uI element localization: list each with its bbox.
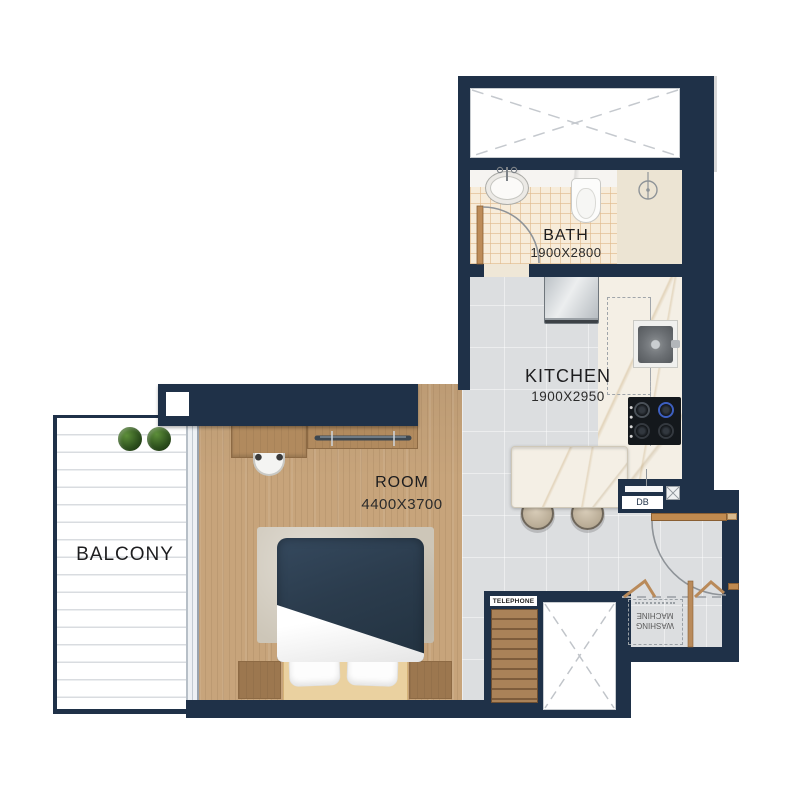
washing-machine-label: WASHING MACHINE bbox=[631, 610, 679, 630]
entry-jamb bbox=[727, 513, 737, 520]
island-counter bbox=[511, 446, 628, 508]
kitchen-sink-basin bbox=[638, 326, 673, 363]
stove-hob bbox=[628, 397, 681, 445]
plant-icon bbox=[147, 427, 171, 451]
wall-left bbox=[458, 170, 470, 390]
corridor-floor bbox=[462, 598, 486, 702]
toilet bbox=[571, 178, 601, 223]
stove-burner bbox=[634, 402, 650, 418]
db-conduit-line bbox=[646, 469, 647, 486]
room-dims: 4400X3700 bbox=[361, 496, 442, 513]
closet-jamb bbox=[728, 583, 739, 590]
stove-burner bbox=[634, 423, 650, 439]
faucet-icon bbox=[671, 340, 680, 348]
stove-burner bbox=[658, 402, 674, 418]
balcony-label: BALCONY bbox=[76, 544, 174, 566]
kitchen-sink bbox=[633, 320, 678, 368]
stove-burner bbox=[658, 423, 674, 439]
entry-threshold bbox=[651, 513, 727, 521]
db-switch-box bbox=[666, 486, 680, 500]
toilet-seat bbox=[576, 188, 596, 219]
plant-icon bbox=[118, 427, 142, 451]
wall-column-notch bbox=[166, 392, 189, 416]
db-meter-bar bbox=[625, 486, 663, 492]
wall-closet-bottom bbox=[614, 647, 739, 662]
wall-outline bbox=[714, 76, 717, 172]
room-label: ROOM bbox=[375, 474, 429, 492]
kitchen-dims: 1900X2950 bbox=[531, 389, 605, 404]
washing-machine-hatch bbox=[635, 602, 675, 604]
washing-machine-box: WASHING MACHINE bbox=[628, 599, 683, 645]
bed-duvet bbox=[277, 538, 424, 662]
shaft-bottom bbox=[543, 602, 616, 710]
nightstand bbox=[238, 661, 281, 699]
wall-room-top bbox=[158, 384, 418, 426]
wall-right bbox=[682, 76, 714, 513]
wall-bath-bottom-left bbox=[458, 264, 484, 277]
db-label-box: DB bbox=[622, 496, 663, 509]
wardrobe bbox=[307, 425, 418, 449]
bath-dims: 1900X2800 bbox=[530, 245, 601, 260]
kitchen-label: KITCHEN bbox=[525, 366, 611, 387]
telephone-label: TELEPHONE bbox=[490, 598, 537, 605]
wall-bath-bottom-right bbox=[529, 264, 684, 277]
bed-sheet-fold bbox=[277, 538, 424, 662]
floor-plan: TELEPHONE DB WASHING MACHINE bbox=[0, 0, 800, 800]
telephone-label-box: TELEPHONE bbox=[489, 595, 538, 607]
hall-floor bbox=[618, 512, 722, 600]
fridge bbox=[544, 272, 599, 324]
washbasin bbox=[485, 171, 529, 205]
bath-shower-area bbox=[617, 170, 682, 264]
db-label: DB bbox=[622, 497, 663, 507]
shaft-top bbox=[470, 88, 680, 158]
balcony-window bbox=[186, 423, 199, 702]
bath-label: BATH bbox=[543, 227, 588, 245]
telephone-cabinet bbox=[491, 609, 538, 703]
bath-door-threshold bbox=[484, 264, 529, 277]
nightstand bbox=[409, 661, 452, 699]
